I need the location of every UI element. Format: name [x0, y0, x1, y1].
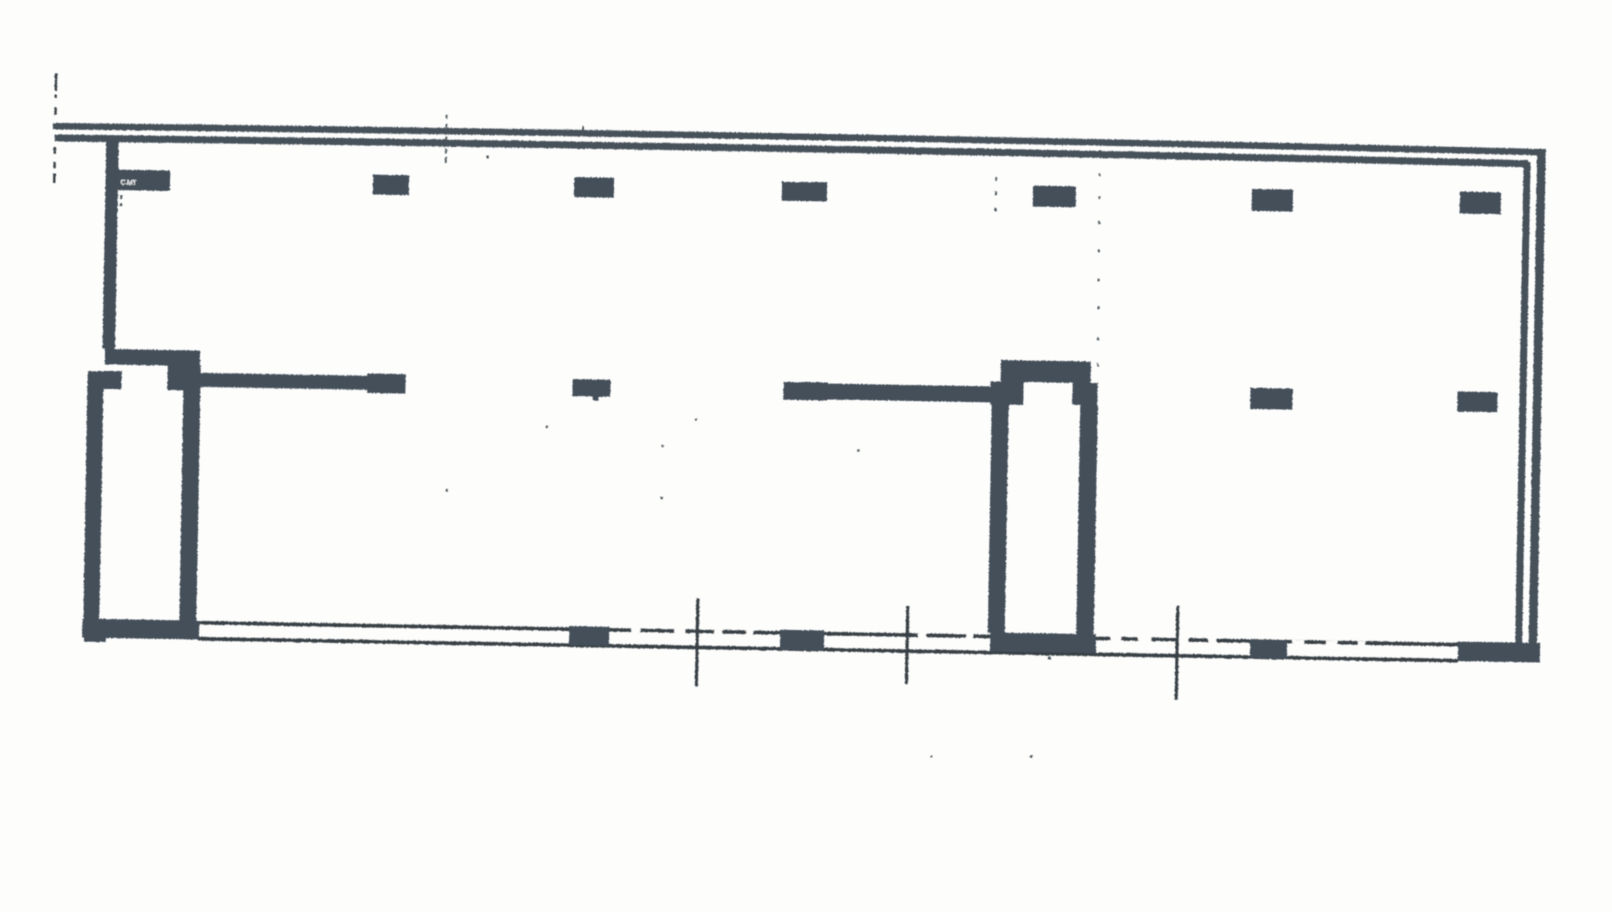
- svg-text:C.MT: C.MT: [120, 180, 137, 187]
